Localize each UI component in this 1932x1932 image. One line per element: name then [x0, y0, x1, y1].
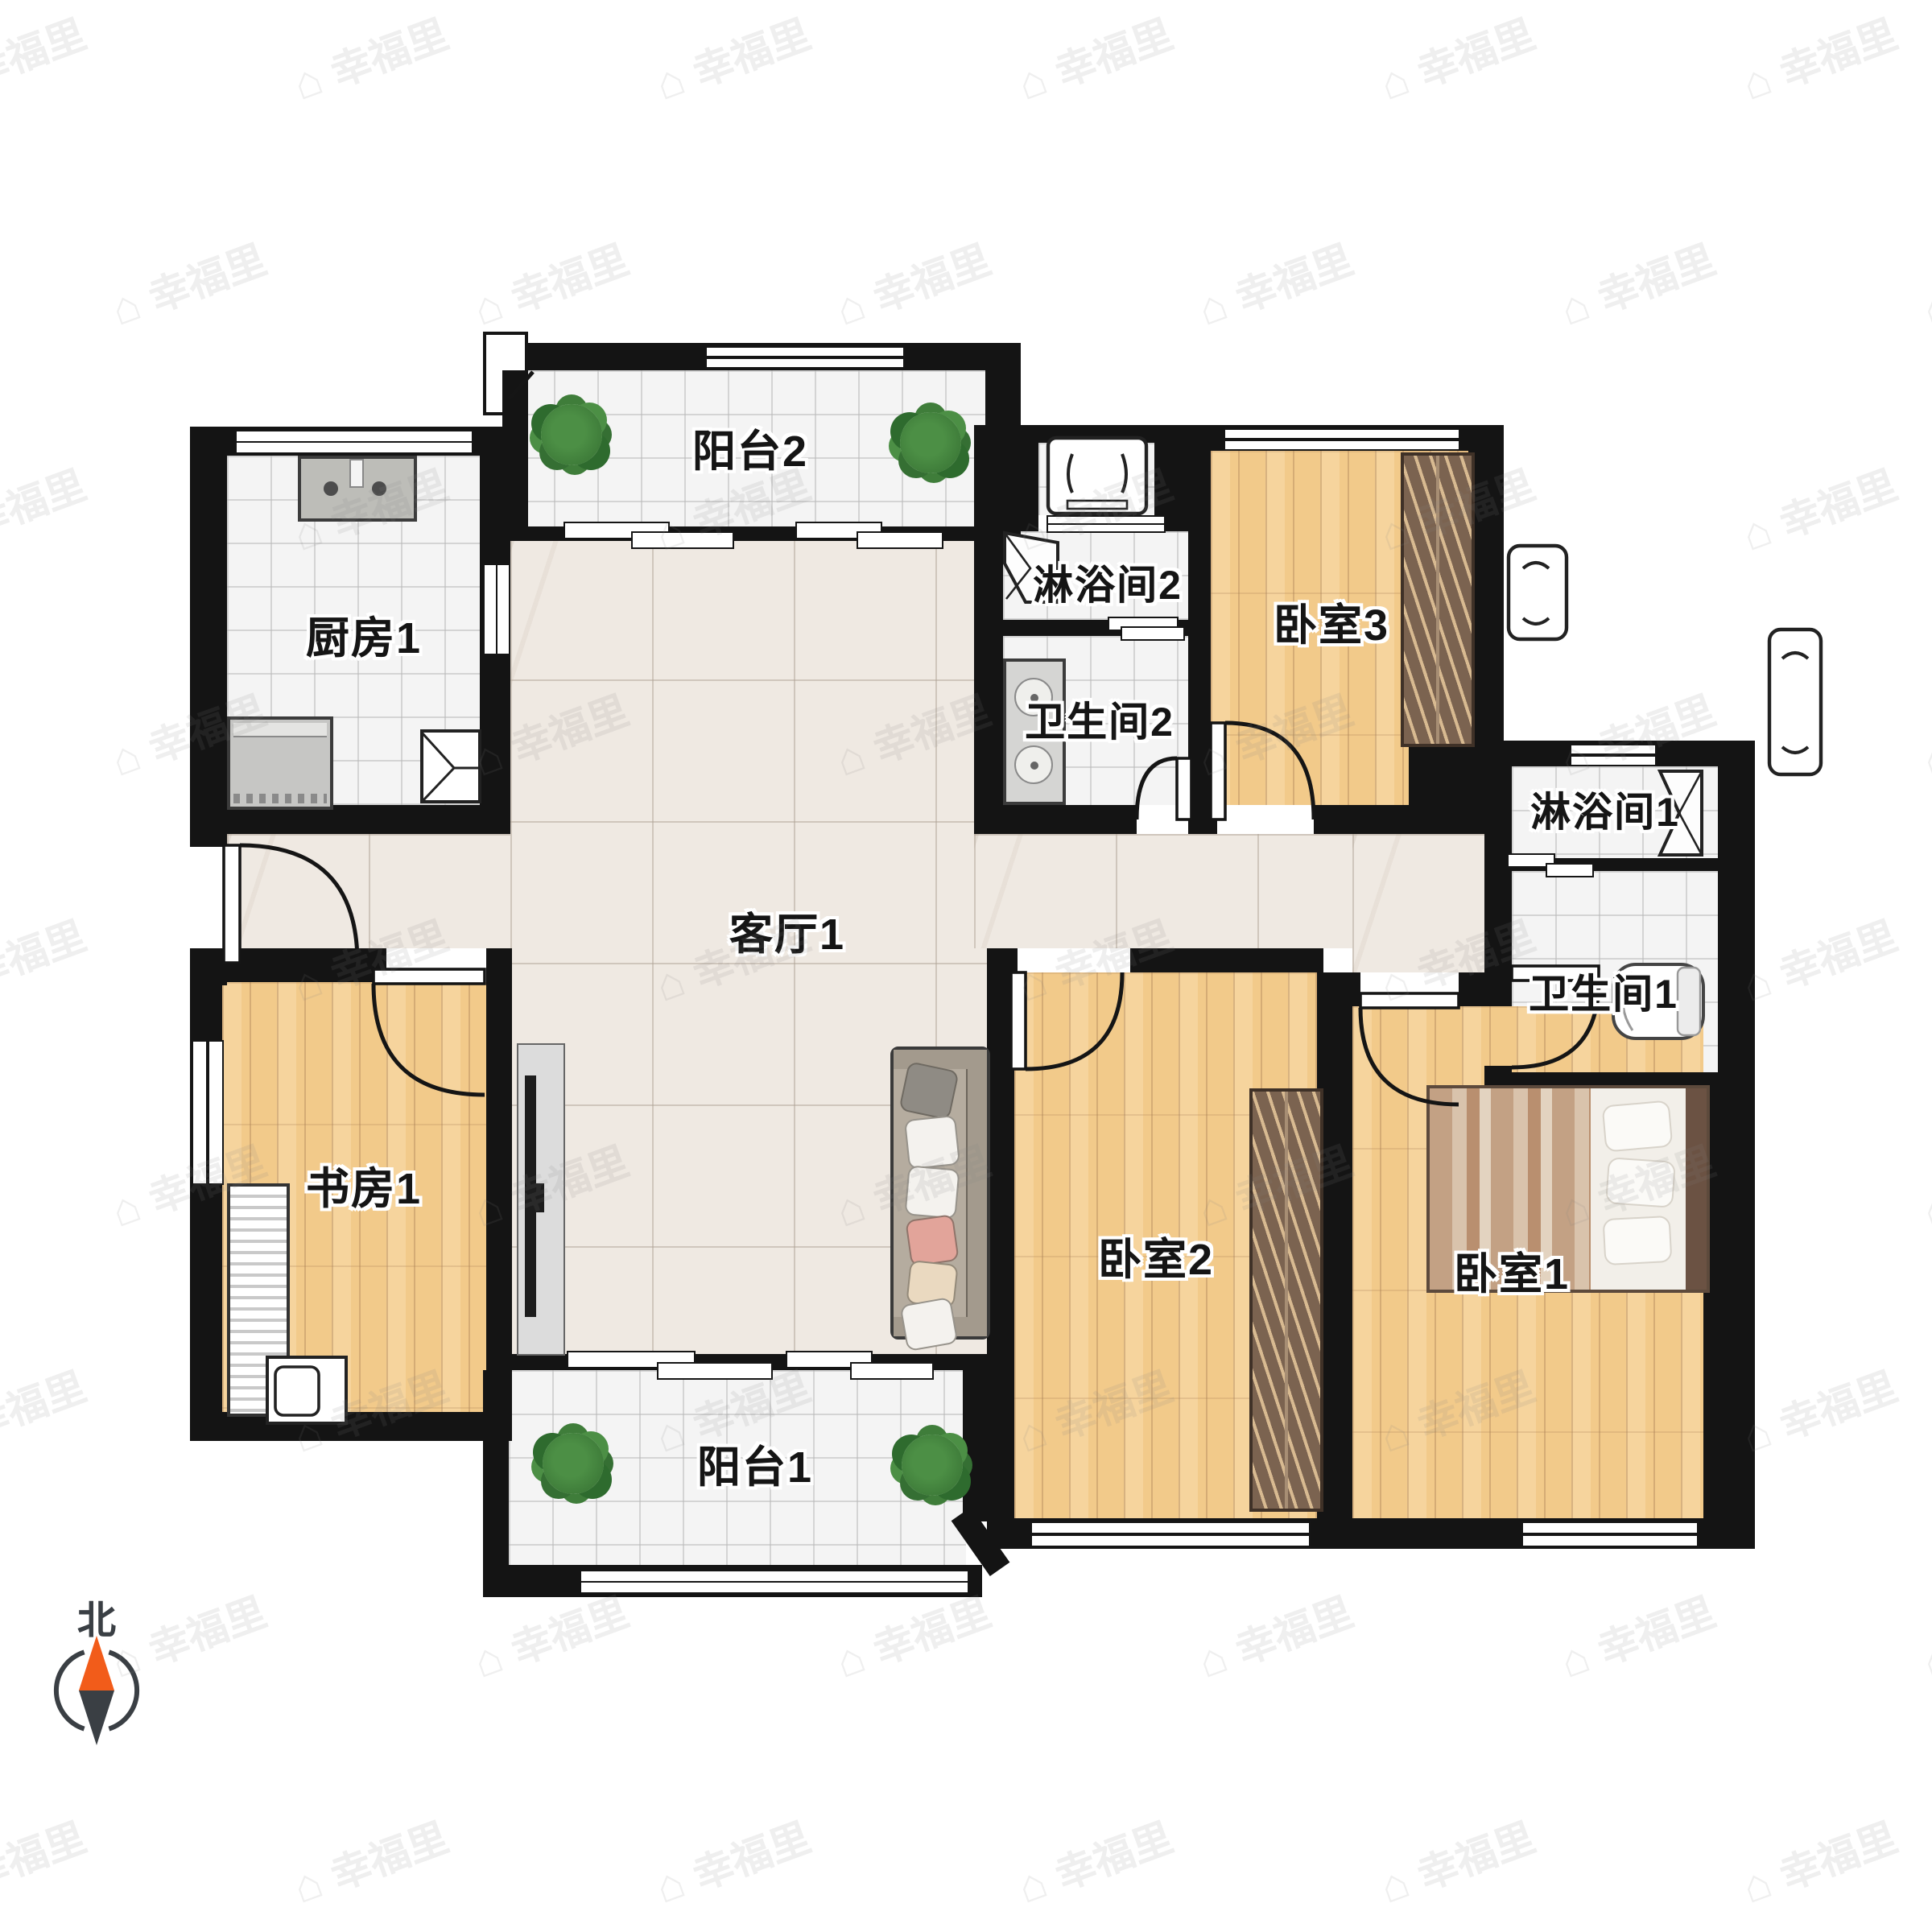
watermark: 幸福里: [1914, 679, 1932, 789]
sliding-door: [850, 1362, 934, 1380]
sofa-icon: [890, 1046, 990, 1340]
wall: [963, 1370, 990, 1521]
room-label-balcony1: 阳台1: [697, 1432, 813, 1495]
wall: [974, 531, 1003, 834]
watermark: 幸福里: [0, 3, 93, 113]
window: [1224, 428, 1460, 451]
ac-unit-marks: [1523, 563, 1549, 624]
wall: [190, 427, 227, 834]
window: [235, 430, 473, 454]
pillow-icon: [904, 1165, 960, 1219]
floor-plan-canvas: 厨房1 阳台2 淋浴间2 卫生间2 卧室3 淋浴间1 卫生间1 客厅1 书房1 …: [0, 0, 1932, 1932]
pillow-icon: [905, 1214, 959, 1267]
wall: [987, 948, 1014, 1549]
wall: [190, 948, 386, 982]
tv-icon: [536, 1183, 544, 1212]
room-label-bedroom2: 卧室2: [1098, 1224, 1214, 1287]
watermark: 幸福里: [0, 1806, 93, 1916]
watermark: 幸福里: [103, 229, 274, 338]
watermark: 幸福里: [1734, 905, 1905, 1014]
room-label-shower2: 淋浴间2: [1033, 554, 1183, 612]
window: [1521, 1521, 1699, 1547]
wall: [1209, 805, 1217, 834]
room-label-bathroom1: 卫生间1: [1529, 963, 1678, 1021]
stove-grill: [233, 794, 327, 803]
watermark: 幸福里: [1734, 454, 1905, 563]
sofa-armrest: [894, 1050, 987, 1069]
sink-bowl: [1014, 745, 1053, 784]
plant-icon: [543, 1433, 604, 1494]
room-label-bedroom1: 卧室1: [1454, 1239, 1570, 1302]
window: [580, 1570, 969, 1594]
watermark: 幸福里: [0, 1356, 93, 1465]
wall: [1314, 805, 1409, 834]
plant-icon: [900, 412, 961, 473]
room-label-study: 书房1: [306, 1154, 422, 1216]
sliding-door: [1546, 863, 1594, 877]
watermark: 幸福里: [828, 229, 998, 338]
wall: [1459, 972, 1512, 1006]
room-label-bedroom3: 卧室3: [1274, 590, 1389, 653]
bed-headboard: [1686, 1088, 1707, 1290]
watermark: 幸福里: [1552, 1581, 1723, 1690]
compass-circle: [56, 1652, 85, 1728]
room-label-kitchen: 厨房1: [306, 603, 422, 666]
sliding-door: [1121, 626, 1185, 641]
watermark: 幸福里: [1009, 3, 1180, 113]
sofa-backrest: [966, 1050, 987, 1336]
watermark: 幸福里: [0, 454, 93, 563]
ac-unit-icon: [1769, 630, 1821, 774]
pillow-ic on: [1605, 1157, 1676, 1208]
watermark: 幸福里: [647, 1806, 818, 1916]
kitchen-sink-icon: [298, 456, 417, 522]
watermark: 幸福里: [1190, 1581, 1360, 1690]
wall: [502, 370, 528, 541]
watermark: 幸福里: [1914, 1130, 1932, 1240]
watermark: 幸福里: [828, 1581, 998, 1690]
watermark: 幸福里: [647, 3, 818, 113]
wall: [190, 834, 227, 847]
wardrobe-icon: [1401, 452, 1475, 747]
window: [1570, 744, 1657, 766]
plant-icon: [541, 404, 602, 465]
wall: [1130, 948, 1323, 972]
hall-floor: [1352, 834, 1484, 972]
plant-icon: [902, 1435, 963, 1496]
wall: [1038, 425, 1170, 443]
room-label-bathroom2: 卫生间2: [1025, 691, 1174, 749]
entry-hall-floor: [227, 834, 510, 948]
room-label-shower1: 淋浴间1: [1530, 781, 1680, 839]
washer-niche-floor: [1038, 443, 1170, 515]
pillow-icon: [898, 1061, 959, 1121]
watermark: 幸福里: [1372, 3, 1542, 113]
wall: [1703, 1098, 1755, 1549]
room-label-balcony2: 阳台2: [692, 416, 808, 479]
watermark: 幸福里: [465, 229, 636, 338]
sink-drain: [324, 481, 338, 496]
wall: [1409, 741, 1484, 834]
ac-unit-marks: [1782, 653, 1808, 753]
room-label-living: 客厅1: [729, 899, 845, 962]
watermark: 幸福里: [1552, 229, 1723, 338]
bookshelf-icon: [227, 1183, 290, 1417]
window: [705, 346, 905, 369]
pillow-icon: [899, 1297, 958, 1352]
watermark: 幸福里: [465, 1581, 636, 1690]
watermark: 幸福里: [0, 905, 93, 1014]
window: [1046, 515, 1166, 533]
tv-icon: [525, 1075, 536, 1317]
wardrobe-icon: [1249, 1088, 1323, 1512]
window: [192, 1040, 224, 1185]
stove-icon: [227, 716, 333, 810]
wall: [1352, 972, 1360, 1006]
wall: [1188, 425, 1211, 834]
watermark: 幸福里: [1734, 1806, 1905, 1916]
pillow-icon: [904, 1115, 960, 1170]
ac-unit-icon: [1509, 546, 1567, 639]
watermark: 幸福里: [1190, 229, 1360, 338]
watermark: 幸福里: [1914, 1581, 1932, 1690]
compass-circle: [109, 1652, 137, 1728]
watermark: 幸福里: [285, 1806, 456, 1916]
watermark: 幸福里: [285, 3, 456, 113]
pillow-icon: [1603, 1216, 1673, 1265]
wall: [483, 1370, 509, 1597]
sliding-door: [631, 531, 734, 549]
faucet-icon: [349, 459, 364, 488]
pillow-icon: [1602, 1100, 1674, 1152]
counter-edge: [233, 723, 327, 737]
watermark: 幸福里: [1734, 1356, 1905, 1465]
window: [1030, 1521, 1311, 1547]
compass-needle-south: [79, 1690, 114, 1745]
compass-north-label: 北: [77, 1588, 116, 1645]
sink-drain: [372, 481, 386, 496]
wall: [974, 425, 1038, 531]
window: [483, 563, 510, 655]
wall: [1718, 741, 1755, 1098]
watermark: 幸福里: [1009, 1806, 1180, 1916]
watermark: 幸福里: [1914, 229, 1932, 338]
watermark: 幸福里: [1734, 3, 1905, 113]
watermark: 幸福里: [1372, 1806, 1542, 1916]
corridor-floor: [974, 834, 1352, 948]
wall: [974, 805, 1137, 834]
sliding-door: [857, 531, 943, 549]
sliding-door: [657, 1362, 773, 1380]
watermark: 幸福里: [103, 1581, 274, 1690]
